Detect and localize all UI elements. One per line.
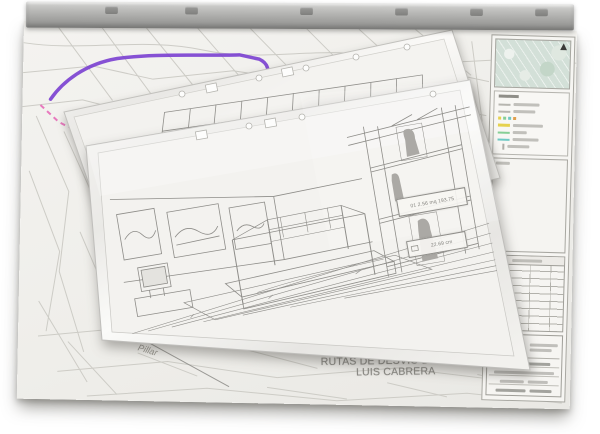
legend-box [492,90,570,156]
rail-clip [185,6,198,14]
notes-label-placeholder [496,161,510,164]
logo-text-placeholder [530,344,558,353]
rail-clip [470,8,483,16]
size-annotation-text: 22.69 cm [431,239,453,248]
title-block-row [488,386,558,394]
title-block-row [489,359,559,368]
inset-location-map [494,38,571,89]
revision-table-header [490,255,564,266]
plan-hanger-rail [26,2,574,31]
title-block-logos [489,336,560,359]
side-panel [481,34,575,402]
rail-clip [300,7,313,15]
rail-clip [395,7,408,15]
green-leaf-logo-icon [492,339,503,353]
rail-clip [535,8,548,16]
location-marker-icon [560,43,567,50]
route-markings [40,27,456,138]
map-title-line3: LUIS CABRERA [318,366,474,380]
detour-route-primary [51,51,269,103]
revision-table [487,254,565,332]
legend-row [497,143,563,152]
map-sheet: PLANO PROVISIONAL RUTAS DE DESVIO DE OBR… [17,21,577,410]
title-block-row [489,368,559,377]
yellow-flame-logo-icon [506,341,514,353]
legend-color-ticks [498,117,516,121]
notes-box [489,157,568,253]
area-annotation-text: 01 2.56 mq 193.75 [410,195,455,208]
rail-clip [105,6,118,14]
title-block [485,333,563,397]
annotation-checkbox-icon [411,245,419,252]
photo-scene: PLANO PROVISIONAL RUTAS DE DESVIO DE OBR… [0,0,600,434]
legend-title-placeholder [499,95,519,99]
title-block-row [489,377,559,386]
detour-route-secondary [40,81,321,135]
map-title: PLANO PROVISIONAL RUTAS DE DESVIO DE OBR… [317,343,474,380]
